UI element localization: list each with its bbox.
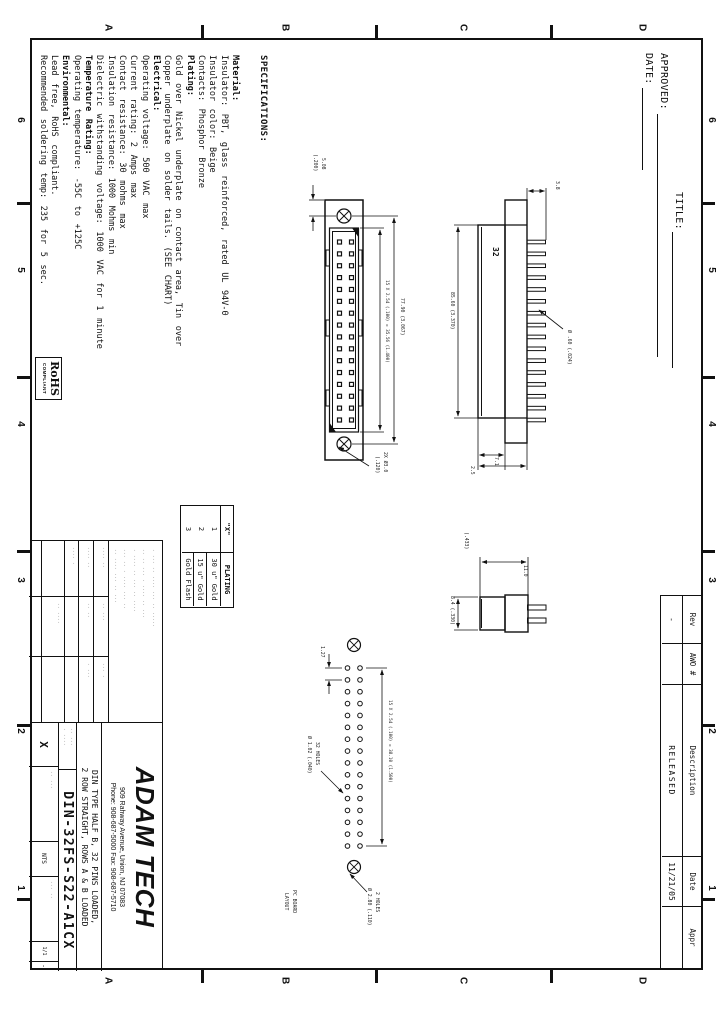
drawing-sheet: TITLE: APPROVED: DATE: SPECIFICATIONS: M… xyxy=(0,0,720,1012)
zone-tick xyxy=(703,550,715,553)
zone-column-label: 5 xyxy=(15,267,26,273)
dim-label: 7.1 xyxy=(493,457,498,466)
zone-tick xyxy=(17,724,30,727)
zone-tick xyxy=(17,202,30,205)
page: TITLE: APPROVED: DATE: SPECIFICATIONS: M… xyxy=(0,0,720,1012)
zone-tick xyxy=(376,25,379,38)
dim-label: 8.4 (.330) xyxy=(449,596,454,625)
zone-tick xyxy=(202,25,205,38)
pcb-footprint-view xyxy=(321,639,387,893)
zone-column-label: 3 xyxy=(15,577,26,583)
zone-tick xyxy=(17,376,30,379)
dim-label: 2X Ø3.0 xyxy=(382,452,387,472)
dim-label: 85.60 (3.370) xyxy=(449,292,454,330)
zone-column-label: 1 xyxy=(15,885,26,891)
pin-count-marking: 32 xyxy=(491,247,500,257)
dim-label: 32 HOLES xyxy=(314,742,319,765)
zone-tick xyxy=(703,376,715,379)
dim-label: (.200) xyxy=(312,154,317,171)
zone-column-label: 5 xyxy=(706,267,717,273)
zone-row-label: B xyxy=(280,24,291,31)
zone-column-label: 6 xyxy=(15,117,26,123)
zone-tick xyxy=(551,25,554,38)
zone-tick xyxy=(376,970,379,983)
dim-label: 15 X 2.54 (.100) = 35.56 (1.400) xyxy=(384,280,389,363)
profile-view xyxy=(454,557,546,632)
zone-tick xyxy=(17,550,30,553)
dim-label: PC BOARD xyxy=(291,890,296,913)
zone-column-label: 2 xyxy=(15,728,26,734)
dim-label: (.120) xyxy=(374,456,379,473)
dim-label: 3.8 xyxy=(554,181,559,190)
zone-row-label: A xyxy=(103,24,114,31)
zone-tick xyxy=(202,970,205,983)
dim-label: Ø .60 (.024) xyxy=(566,330,571,365)
dim-label: 15 X 2.54 (.100) = 38.10 (1.500) xyxy=(387,700,392,783)
zone-column-label: 6 xyxy=(706,117,717,123)
dim-label: 5.08 xyxy=(320,158,325,170)
zone-row-label: A xyxy=(103,977,114,984)
dim-label: 2.5 xyxy=(469,466,474,475)
dim-label: Ø 1.02 (.040) xyxy=(306,736,311,774)
zone-row-label: C xyxy=(458,977,469,984)
zone-column-label: 4 xyxy=(706,421,717,427)
zone-tick xyxy=(703,898,715,901)
dim-label: 2 HOLES xyxy=(374,892,379,912)
zone-tick xyxy=(703,724,715,727)
zone-row-label: D xyxy=(637,977,648,984)
connector-views xyxy=(0,0,720,1012)
zone-column-label: 1 xyxy=(706,885,717,891)
zone-row-label: D xyxy=(637,24,648,31)
dim-label: 11.0 xyxy=(522,565,527,577)
zone-column-label: 3 xyxy=(706,577,717,583)
dim-label: Ø 2.80 (.110) xyxy=(366,888,371,926)
zone-tick xyxy=(17,898,30,901)
dim-label: (.433) xyxy=(463,532,468,549)
zone-tick xyxy=(703,202,715,205)
dim-label: 1.27 xyxy=(319,646,324,658)
dim-label: 77.90 (3.067) xyxy=(399,298,404,336)
zone-row-label: C xyxy=(458,24,469,31)
side-view xyxy=(454,188,563,470)
zone-column-label: 4 xyxy=(15,421,26,427)
zone-column-label: 2 xyxy=(706,728,717,734)
dim-label: LAYOUT xyxy=(283,893,288,910)
zone-row-label: B xyxy=(280,977,291,984)
zone-tick xyxy=(551,970,554,983)
